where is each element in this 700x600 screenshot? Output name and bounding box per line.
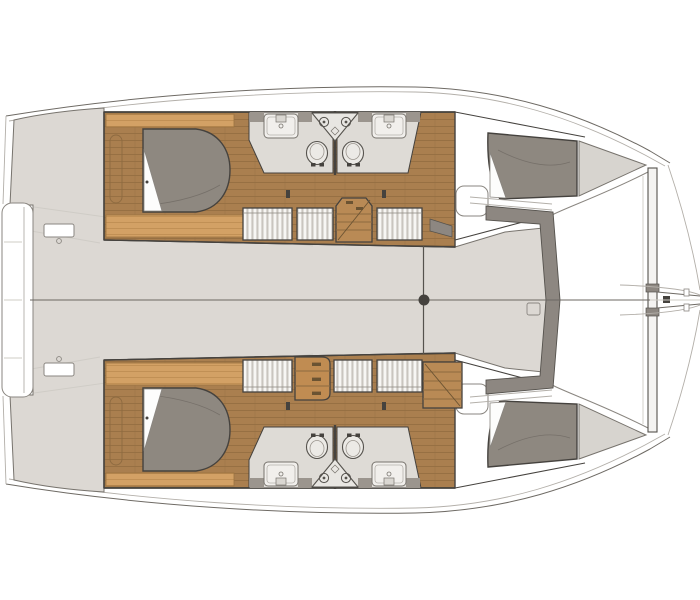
wardrobe-2-top	[297, 208, 333, 240]
mast-step	[419, 295, 430, 306]
staircase-bottom-hull	[423, 362, 462, 408]
boat-floor-plan	[0, 0, 700, 600]
staircase-top-hull	[336, 198, 372, 242]
transom-hatch	[44, 224, 74, 237]
anchor-fitting	[663, 296, 670, 303]
wardrobe-2-bottom	[334, 360, 372, 392]
dresser-bottom-hull	[295, 357, 330, 400]
transom-hatch	[44, 363, 74, 376]
